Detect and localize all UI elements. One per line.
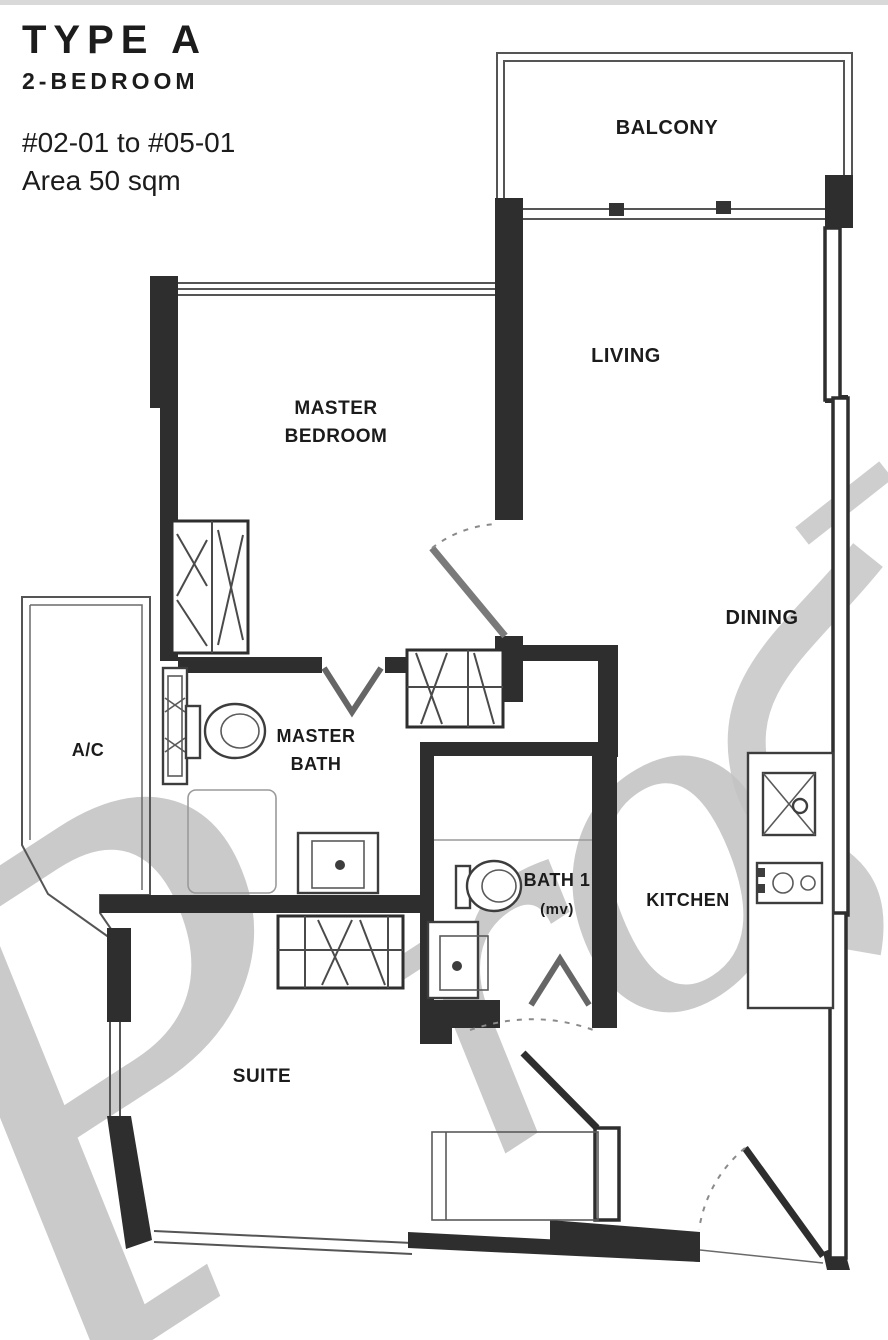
floorplan-page: TYPE A 2-BEDROOM #02-01 to #05-01 Area 5… — [0, 0, 888, 1340]
suite-closet — [278, 916, 403, 988]
room-label-master-bedroom-line1: MASTER — [294, 398, 377, 419]
master-bedroom-wardrobe — [172, 521, 248, 653]
kitchen-sink — [763, 773, 815, 835]
kitchen-hob — [757, 863, 822, 903]
room-label-living: LIVING — [591, 345, 661, 367]
master-bath-plumbing-chase — [163, 668, 187, 784]
master-bath-toilet — [186, 704, 265, 758]
master-bath-vanity-sink — [298, 833, 378, 893]
entrance-door — [699, 1148, 823, 1256]
entrance-threshold — [700, 1250, 823, 1263]
bath1-toilet — [456, 861, 521, 911]
floorplan-svg: P r o — [0, 0, 888, 1340]
room-label-suite: SUITE — [233, 1066, 291, 1087]
room-label-master-bedroom-line2: BEDROOM — [285, 426, 388, 447]
master-bedroom-window — [178, 283, 495, 295]
room-label-ac: A/C — [72, 740, 105, 760]
room-label-kitchen: KITCHEN — [646, 890, 730, 910]
master-bath-door — [324, 668, 381, 712]
corridor-closet — [407, 650, 503, 727]
room-label-bath1-line1: BATH 1 — [524, 870, 591, 890]
room-label-master-bath-line1: MASTER — [277, 726, 356, 746]
room-label-dining: DINING — [726, 607, 799, 629]
room-label-balcony: BALCONY — [616, 117, 719, 139]
room-label-master-bath-line2: BATH — [291, 754, 342, 774]
balcony-sliding-door — [523, 201, 825, 219]
bath1-vanity-sink — [428, 922, 488, 998]
master-bedroom-door — [432, 524, 505, 636]
room-label-bath1-line2: (mv) — [540, 901, 574, 918]
